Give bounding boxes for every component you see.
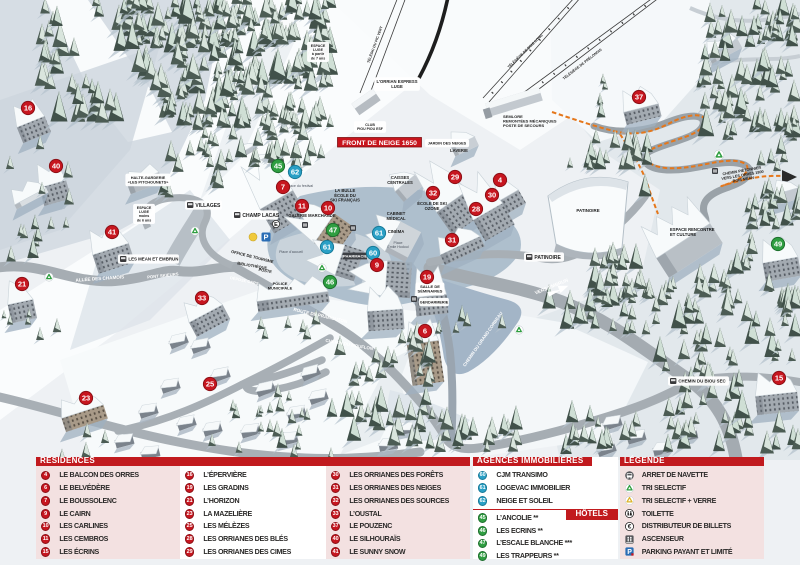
svg-text:OZONE: OZONE: [425, 206, 440, 211]
svg-text:Place d'accueil: Place d'accueil: [279, 250, 303, 254]
svg-text:25: 25: [206, 380, 214, 389]
svg-text:19: 19: [423, 273, 431, 282]
svg-text:Émile Hodoul: Émile Hodoul: [387, 244, 409, 249]
svg-text:46: 46: [326, 278, 334, 287]
svg-text:SÉMINAIRES: SÉMINAIRES: [418, 289, 443, 294]
svg-text:CHEMIN DU BIOU SEC: CHEMIN DU BIOU SEC: [678, 379, 726, 384]
svg-text:37: 37: [635, 93, 643, 102]
svg-text:16: 16: [24, 104, 32, 113]
svg-text:ET CULTURE: ET CULTURE: [670, 232, 696, 237]
svg-text:Place du festival: Place du festival: [287, 184, 313, 188]
svg-text:21: 21: [18, 280, 26, 289]
svg-text:CINÉMA: CINÉMA: [388, 229, 405, 234]
svg-text:€: €: [628, 524, 632, 531]
svg-text:CHAMP LACAS: CHAMP LACAS: [242, 213, 280, 219]
svg-text:6: 6: [423, 327, 427, 336]
svg-text:de 7 ans: de 7 ans: [311, 56, 325, 60]
svg-text:PIOU PIOU ESF: PIOU PIOU ESF: [357, 127, 384, 131]
svg-text:PHARMACIE: PHARMACIE: [343, 254, 368, 259]
svg-text:«LES PITCHOUNETS»: «LES PITCHOUNETS»: [128, 180, 169, 185]
svg-text:61: 61: [375, 229, 383, 238]
svg-text:15: 15: [775, 374, 783, 383]
svg-text:SKI FRANÇAIS: SKI FRANÇAIS: [330, 198, 360, 203]
svg-text:CENTRALES: CENTRALES: [387, 180, 413, 185]
svg-text:PATINOIRE: PATINOIRE: [576, 208, 599, 213]
svg-text:33: 33: [198, 294, 206, 303]
svg-text:LUGE: LUGE: [391, 84, 403, 89]
svg-text:30: 30: [488, 191, 496, 200]
svg-text:P: P: [263, 233, 268, 242]
svg-text:45: 45: [274, 162, 282, 171]
svg-text:61: 61: [323, 243, 331, 252]
svg-text:10: 10: [324, 204, 332, 213]
svg-text:41: 41: [108, 228, 116, 237]
svg-text:MUNICIPALE: MUNICIPALE: [268, 286, 293, 291]
svg-text:POSTE DE SECOURS: POSTE DE SECOURS: [503, 123, 544, 128]
svg-text:VILLAGES: VILLAGES: [195, 203, 221, 209]
svg-text:23: 23: [82, 394, 90, 403]
svg-text:60: 60: [369, 249, 377, 258]
svg-text:7: 7: [281, 183, 285, 192]
svg-text:29: 29: [451, 173, 459, 182]
svg-text:de 6 ans: de 6 ans: [137, 218, 151, 222]
svg-text:GENDARMERIE: GENDARMERIE: [420, 300, 449, 304]
svg-text:E: E: [274, 222, 278, 228]
svg-text:49: 49: [774, 240, 782, 249]
svg-text:LAVERIE: LAVERIE: [450, 148, 468, 153]
svg-text:LES MEAN ET EMBRUN: LES MEAN ET EMBRUN: [128, 257, 178, 262]
svg-text:11: 11: [298, 202, 306, 211]
svg-text:JARDIN DES NEIGES: JARDIN DES NEIGES: [428, 141, 467, 145]
svg-text:PATINOIRE: PATINOIRE: [534, 255, 561, 261]
svg-text:FRONT DE NEIGE 1650: FRONT DE NEIGE 1650: [342, 140, 417, 147]
svg-text:32: 32: [429, 189, 437, 198]
svg-text:28: 28: [472, 205, 480, 214]
svg-text:31: 31: [448, 236, 456, 245]
svg-text:62: 62: [291, 168, 299, 177]
svg-text:9: 9: [375, 261, 379, 270]
svg-text:47: 47: [329, 226, 337, 235]
svg-text:40: 40: [52, 162, 60, 171]
svg-text:MÉDICAL: MÉDICAL: [386, 216, 406, 221]
